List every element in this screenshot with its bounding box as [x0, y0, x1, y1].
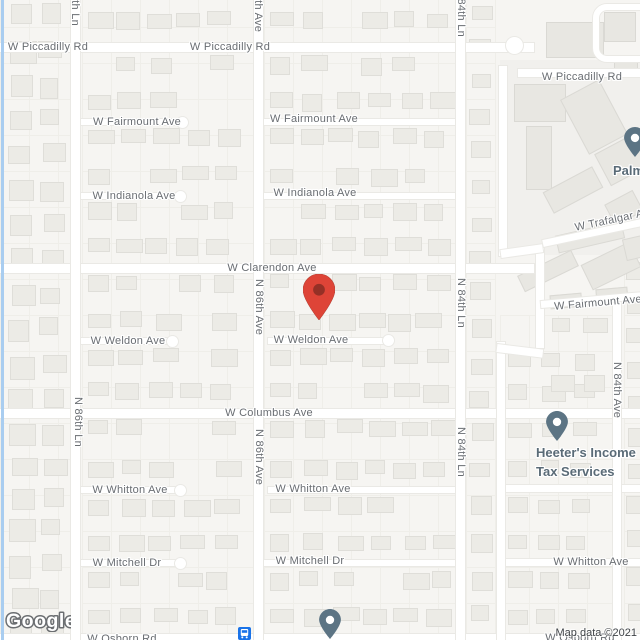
building: [42, 250, 64, 271]
building: [120, 572, 139, 586]
road-connector-2: [497, 344, 544, 358]
road-connector-1: [500, 244, 543, 258]
building: [120, 608, 141, 623]
building: [362, 349, 385, 367]
building: [402, 422, 428, 436]
street-label-whitton-1: W Whitton Ave: [92, 484, 167, 496]
building: [178, 573, 203, 587]
building: [336, 462, 358, 480]
building: [188, 130, 210, 146]
building: [182, 166, 209, 180]
building: [180, 535, 205, 549]
building: [40, 78, 58, 99]
building: [628, 396, 640, 412]
map-canvas[interactable]: W Piccadilly Rd W Piccadilly Rd W Piccad…: [0, 0, 640, 640]
building: [150, 169, 177, 183]
street-label-piccadilly-1: W Piccadilly Rd: [8, 41, 88, 53]
road-suburb-2: [536, 248, 544, 348]
building: [12, 489, 35, 510]
building: [116, 12, 140, 30]
building: [270, 499, 291, 513]
building: [88, 572, 110, 588]
building: [11, 4, 32, 24]
building: [393, 274, 417, 290]
road-w-fairmount-b: [260, 119, 458, 125]
building: [551, 375, 575, 392]
road-w-fairmount-a: [80, 119, 184, 125]
building: [604, 12, 636, 42]
building: [116, 276, 137, 290]
street-label-n86ave-top: N 86th Ave: [252, 0, 264, 32]
building: [471, 534, 493, 553]
building: [12, 588, 39, 609]
destination-marker-dot: [313, 284, 325, 296]
street-label-whitton-2: W Whitton Ave: [275, 483, 350, 495]
building: [536, 609, 555, 624]
building: [88, 462, 114, 478]
road-w-whitton-right: [500, 559, 640, 566]
building: [427, 275, 451, 291]
building: [359, 313, 386, 328]
building: [88, 130, 115, 144]
building: [393, 128, 417, 144]
building: [566, 609, 586, 623]
building: [469, 109, 490, 125]
bus-stop-icon[interactable]: [238, 627, 251, 640]
building: [215, 166, 237, 180]
building: [514, 84, 566, 122]
culdesac: [167, 336, 178, 347]
building: [430, 92, 457, 109]
street-label-indianola-2: W Indianola Ave: [273, 187, 356, 199]
building: [508, 353, 531, 367]
building: [517, 250, 579, 292]
street-label-osborn-right: W Osborn Rd: [545, 632, 614, 640]
building: [116, 57, 135, 71]
building: [88, 610, 110, 624]
building: [210, 384, 231, 400]
building: [88, 500, 109, 516]
building: [149, 382, 173, 398]
building: [214, 499, 240, 514]
road-w-whitton-b: [268, 487, 458, 493]
building: [303, 12, 323, 29]
building: [176, 13, 200, 27]
street-label-n84ln-mid: N 84th Ln: [455, 278, 467, 328]
building: [335, 205, 359, 220]
building: [150, 92, 177, 108]
building: [472, 218, 492, 232]
building: [472, 74, 491, 88]
road-w-piccadilly-right: [518, 69, 640, 77]
building: [210, 55, 234, 70]
building: [626, 328, 640, 343]
building: [471, 605, 489, 621]
building: [583, 318, 608, 333]
poi-pin-heeters[interactable]: [546, 411, 568, 446]
culdesac: [383, 335, 394, 346]
poi-label-heeters[interactable]: Heeter's Income Tax Services: [536, 443, 636, 481]
poi-label-palm[interactable]: Palm: [613, 161, 640, 180]
building: [12, 458, 38, 476]
building: [207, 11, 231, 25]
building: [431, 420, 456, 436]
building: [88, 382, 109, 396]
building: [8, 146, 30, 164]
building: [11, 248, 33, 267]
canal-line: [1, 0, 4, 640]
building: [359, 277, 381, 291]
street-label-n86ln-top: N 86th Ln: [69, 0, 81, 26]
building: [10, 357, 35, 380]
building: [40, 109, 59, 125]
building: [300, 348, 327, 365]
building: [626, 567, 640, 586]
building: [116, 419, 142, 435]
building: [156, 314, 182, 331]
building: [541, 460, 559, 474]
building: [153, 128, 180, 144]
building: [44, 214, 65, 232]
building: [570, 463, 591, 478]
building: [371, 169, 398, 187]
building: [298, 383, 317, 399]
destination-marker[interactable]: [303, 274, 335, 325]
road-w-trafalgar: [542, 218, 640, 246]
building: [508, 461, 527, 477]
poi-pin-bottom[interactable]: [319, 609, 341, 640]
building: [595, 287, 628, 306]
building: [10, 215, 32, 236]
building: [10, 41, 37, 64]
building: [121, 129, 146, 143]
street-label-columbus: W Columbus Ave: [225, 407, 313, 419]
building: [38, 41, 62, 58]
road-n-84th-ave: [613, 300, 621, 640]
building: [214, 275, 234, 293]
building: [88, 238, 110, 252]
building: [8, 320, 29, 342]
building: [424, 131, 444, 148]
street-label-indianola-1: W Indianola Ave: [92, 190, 175, 202]
building: [566, 536, 585, 550]
building: [302, 94, 322, 112]
road-w-clarendon: [0, 264, 534, 273]
building: [118, 350, 143, 365]
building: [337, 419, 363, 433]
building: [9, 556, 31, 579]
building: [508, 497, 528, 513]
building: [423, 462, 445, 477]
building: [40, 288, 60, 304]
building: [405, 169, 425, 183]
google-logo[interactable]: Google: [5, 608, 71, 637]
block-grid: [82, 0, 254, 640]
building: [628, 428, 640, 447]
building: [299, 571, 318, 586]
building: [270, 12, 294, 26]
building: [44, 389, 64, 408]
building: [40, 590, 59, 609]
building: [148, 536, 171, 551]
building: [508, 610, 528, 625]
building: [8, 389, 33, 411]
building: [9, 424, 36, 446]
building: [43, 355, 67, 373]
building: [362, 12, 388, 29]
building: [575, 354, 595, 371]
building: [472, 423, 494, 441]
building: [270, 383, 291, 397]
culdesac: [177, 117, 188, 128]
building: [364, 238, 388, 256]
building: [216, 461, 242, 477]
road-n-86th-ln: [71, 0, 80, 640]
building: [543, 166, 604, 213]
building: [119, 535, 145, 552]
building: [508, 423, 532, 438]
building: [117, 203, 137, 221]
building: [11, 75, 33, 97]
building: [469, 251, 491, 267]
street-label-clarendon: W Clarendon Ave: [227, 262, 316, 274]
building: [472, 6, 493, 20]
building: [622, 233, 640, 261]
road-w-indianola-b: [260, 193, 458, 199]
building: [614, 58, 638, 76]
building: [626, 496, 640, 514]
building: [364, 204, 383, 218]
street-label-trafalgar: W Trafalgar Ave: [574, 205, 640, 234]
building: [305, 420, 325, 438]
street-label-mitchell-2: W Mitchell Dr: [276, 555, 345, 567]
building: [115, 383, 139, 400]
building: [328, 128, 353, 142]
building: [361, 58, 382, 76]
building: [270, 311, 295, 328]
building: [270, 57, 290, 75]
building: [88, 314, 111, 328]
building: [206, 239, 229, 255]
road-w-indianola-a: [80, 193, 182, 199]
block-grid: [264, 0, 456, 640]
road-suburb-3: [497, 342, 505, 640]
block-grid: [0, 0, 70, 640]
building: [555, 221, 625, 254]
building: [538, 500, 560, 514]
building: [470, 282, 491, 300]
road-n-86th-ave: [254, 0, 263, 640]
building: [394, 383, 420, 397]
building: [42, 425, 64, 446]
road-right-mid: [500, 485, 640, 492]
building: [388, 314, 411, 332]
building: [270, 609, 294, 623]
building: [369, 421, 396, 437]
building: [88, 95, 111, 110]
building: [270, 239, 297, 255]
building: [88, 420, 108, 434]
building: [363, 609, 387, 625]
building: [627, 362, 640, 379]
building: [626, 262, 640, 280]
building: [336, 168, 359, 185]
building: [572, 499, 590, 513]
building: [415, 313, 442, 328]
building: [628, 604, 640, 621]
building: [122, 460, 141, 474]
street-label-n84ln-bot: N 84th Ln: [455, 427, 467, 477]
building: [568, 573, 590, 589]
building: [358, 131, 379, 148]
building: [508, 535, 527, 549]
street-label-n86ave-bot: N 86th Ave: [253, 429, 265, 485]
street-label-fairmount-right: W Fairmount Ave: [554, 293, 640, 313]
building: [508, 384, 527, 400]
street-label-weldon-1: W Weldon Ave: [91, 335, 166, 347]
building: [215, 535, 238, 549]
road-w-weldon-a: [80, 338, 174, 344]
building: [214, 202, 233, 219]
building: [552, 318, 570, 332]
building: [432, 571, 451, 588]
building: [211, 349, 238, 367]
building: [424, 204, 443, 221]
building: [541, 353, 560, 367]
culdesac: [175, 485, 186, 496]
building: [42, 3, 61, 24]
building: [303, 533, 323, 550]
building: [627, 530, 640, 547]
building: [270, 169, 293, 183]
building: [540, 572, 559, 589]
building: [147, 14, 172, 29]
building: [433, 535, 457, 549]
building: [270, 573, 289, 591]
building: [301, 55, 328, 71]
building: [270, 350, 291, 366]
building: [270, 128, 294, 144]
building: [9, 519, 36, 542]
building: [393, 203, 417, 221]
building: [403, 573, 430, 590]
building: [152, 500, 175, 517]
building: [365, 460, 385, 474]
building: [574, 384, 595, 398]
building: [472, 180, 490, 194]
building: [471, 141, 491, 158]
building: [364, 383, 388, 398]
street-label-n86ln-mid: N 86th Ln: [72, 397, 84, 447]
street-label-weldon-2: W Weldon Ave: [274, 334, 349, 346]
block-grid: [500, 315, 614, 640]
building: [628, 464, 640, 479]
destination-marker-shape: [303, 274, 335, 320]
building: [179, 275, 201, 292]
street-label-whitton-right: W Whitton Ave: [553, 556, 628, 568]
building: [423, 385, 449, 403]
building: [122, 499, 146, 517]
building: [426, 609, 452, 627]
road-w-mitchell-b: [260, 560, 458, 566]
building: [270, 274, 289, 288]
building: [270, 92, 293, 108]
building: [151, 58, 172, 74]
building: [334, 572, 354, 586]
building: [145, 238, 167, 254]
building: [546, 22, 604, 58]
building: [371, 536, 391, 550]
building: [206, 572, 227, 590]
building: [301, 204, 326, 219]
building: [40, 182, 64, 202]
road-suburb-1: [499, 66, 507, 256]
building: [471, 359, 493, 375]
building: [270, 421, 294, 438]
building: [581, 242, 640, 291]
google-logo-text: Google: [6, 610, 71, 632]
building: [332, 237, 356, 251]
building: [212, 421, 236, 435]
building: [549, 293, 582, 310]
building: [215, 607, 236, 625]
building: [469, 391, 489, 408]
building: [88, 275, 109, 292]
street-label-piccadilly-3: W Piccadilly Rd: [542, 71, 622, 83]
building: [471, 496, 492, 515]
block-grid: [624, 255, 640, 640]
building: [180, 383, 202, 398]
building: [538, 535, 560, 550]
street-label-mitchell-1: W Mitchell Dr: [93, 557, 162, 569]
building: [367, 497, 394, 513]
building: [338, 536, 364, 551]
block-grid: [466, 0, 496, 640]
culdesac: [175, 558, 186, 569]
building: [526, 126, 552, 190]
building: [153, 348, 179, 362]
road-w-piccadilly-left: [0, 43, 534, 52]
building: [402, 93, 423, 109]
building: [88, 202, 112, 220]
building: [149, 462, 174, 478]
street-label-n84ave: N 84th Ave: [611, 362, 623, 418]
building: [88, 536, 110, 551]
building: [88, 12, 114, 29]
building: [542, 386, 566, 402]
building: [9, 180, 34, 201]
building: [428, 239, 451, 256]
building: [42, 554, 62, 571]
building: [427, 14, 448, 28]
building: [44, 488, 64, 507]
building: [88, 350, 114, 366]
street-label-fairmount-2: W Fairmount Ave: [270, 113, 358, 125]
building: [117, 92, 141, 109]
building: [120, 311, 142, 327]
poi-pin-shape: [624, 127, 640, 157]
building: [627, 297, 640, 314]
building: [43, 143, 66, 162]
building: [427, 349, 449, 363]
building: [604, 190, 640, 226]
building: [393, 608, 418, 622]
building: [39, 317, 58, 335]
poi-pin-palm[interactable]: [624, 127, 640, 162]
building: [41, 519, 60, 535]
building: [472, 319, 492, 338]
building: [469, 463, 490, 477]
